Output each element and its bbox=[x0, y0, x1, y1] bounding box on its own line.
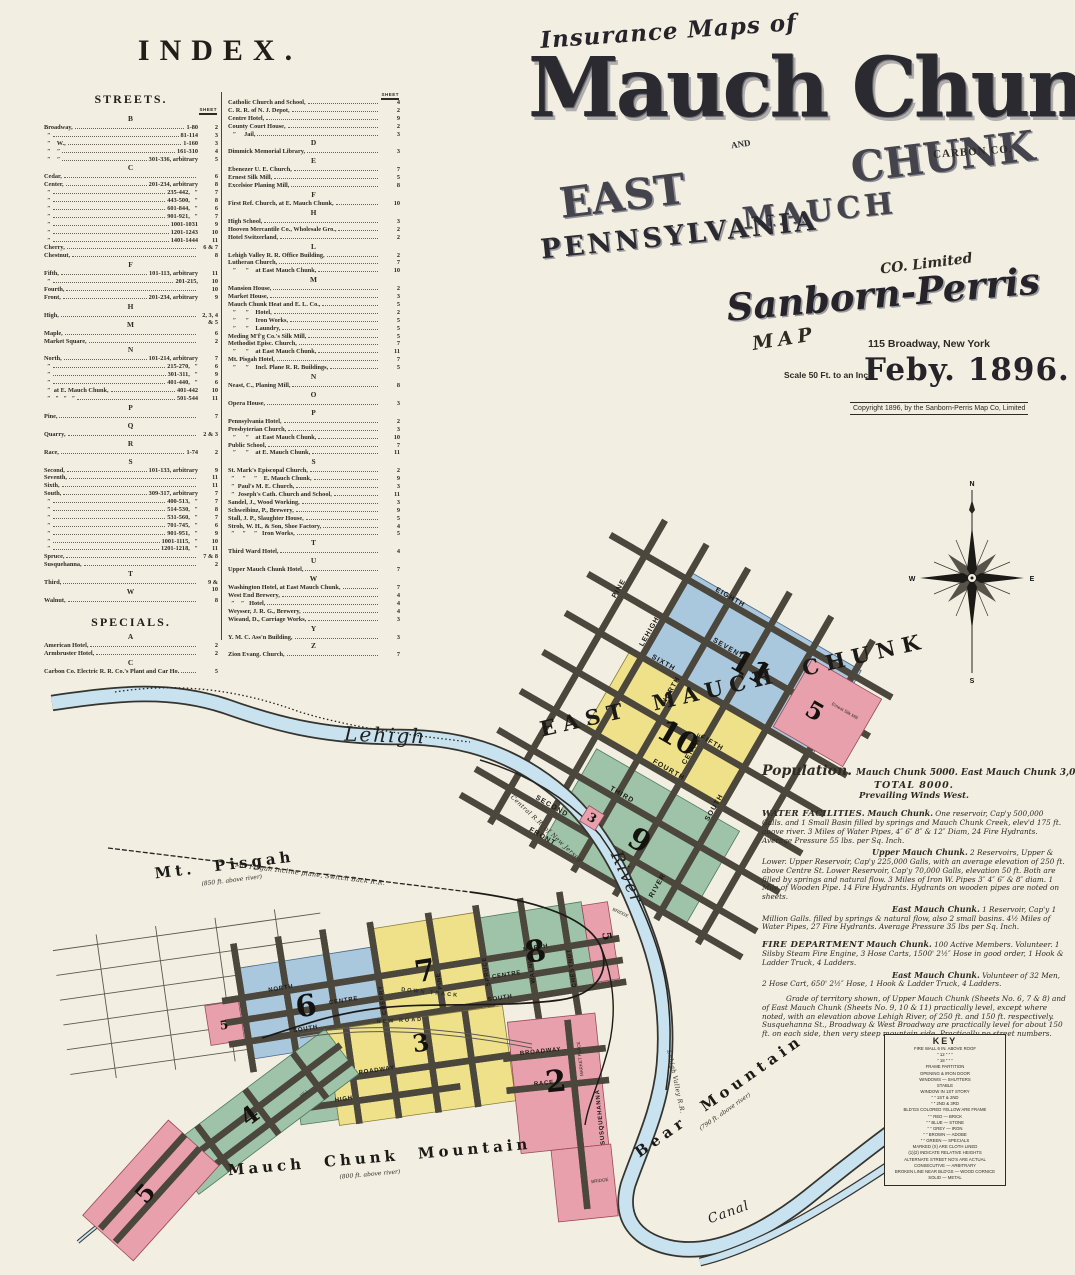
prevailing-winds: Prevailing Winds West. bbox=[762, 791, 1066, 801]
compass-e: E bbox=[1030, 576, 1035, 583]
key-title: KEY bbox=[887, 1036, 1003, 1046]
mauch-chunk-mountain-elevation: (800 ft. above river) bbox=[339, 1168, 401, 1180]
compass-s: S bbox=[970, 678, 975, 685]
compass-n: N bbox=[969, 481, 974, 488]
fire-department-east-mauch-chunk: East Mauch Chunk. Volunteer of 32 Men, 2… bbox=[762, 970, 1066, 990]
compass-rays bbox=[920, 526, 1024, 630]
key-line: BLD'GS COLORED YELLOW ARE FRAME bbox=[887, 1107, 1003, 1113]
lehigh-river-label: Lehigh bbox=[343, 722, 427, 749]
compass-north-arrow bbox=[969, 500, 975, 514]
bridge-label: BRIDGE bbox=[612, 907, 630, 919]
grade-note: Grade of territory shown, of Upper Mauch… bbox=[762, 995, 1066, 1039]
compass-w: W bbox=[909, 576, 916, 583]
water-facilities-east-mauch-chunk: East Mauch Chunk. 1 Reservoir, Cap'y 1 M… bbox=[762, 904, 1066, 932]
key-line: ALTERNATE STREET NO'S ARE ACTUAL bbox=[887, 1157, 1003, 1163]
notes-block: Population. Mauch Chunk 5000. East Mauch… bbox=[762, 762, 1066, 1041]
sanborn-map-sheet: INDEX. STREETS. SHEET B Broadway, 1-80 2… bbox=[0, 0, 1075, 1275]
key-line: SOLID — METAL bbox=[887, 1175, 1003, 1181]
map-key: KEY FIRE WALL 6 IN. ABOVE ROOF″ 12 ″ ″ ″… bbox=[884, 1034, 1006, 1186]
canal-label: Canal bbox=[706, 1198, 752, 1227]
district-2-group: 2 BROADWAY RACE MARKET PLACE SUSQUEHANNA bbox=[499, 1012, 623, 1226]
compass-rose: N S W E bbox=[909, 481, 1035, 685]
water-facilities-mauch-chunk: WATER FACILITIES. Mauch Chunk. One reser… bbox=[762, 808, 1066, 845]
population-word: Population. bbox=[762, 763, 852, 779]
population-total: TOTAL 8000. bbox=[762, 780, 1066, 791]
water-facilities-upper-mauch-chunk: Upper Mauch Chunk. 2 Reservoirs, Upper &… bbox=[762, 847, 1066, 902]
key-lines: FIRE WALL 6 IN. ABOVE ROOF″ 12 ″ ″ ″″ 18… bbox=[887, 1046, 1003, 1181]
fire-department-mauch-chunk: FIRE DEPARTMENT Mauch Chunk. 100 Active … bbox=[762, 939, 1066, 968]
population-line: Population. Mauch Chunk 5000. East Mauch… bbox=[762, 762, 1066, 780]
